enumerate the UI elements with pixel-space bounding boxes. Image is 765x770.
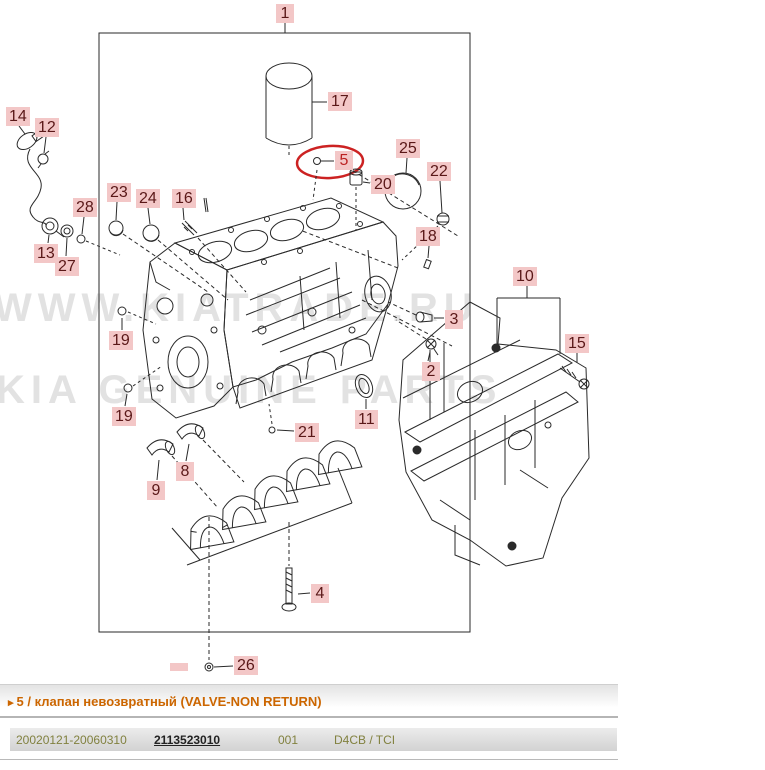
partial-label: [170, 663, 188, 671]
parts-diagram-stage: WWW.KIATRADE.RU KIA GENUINE PARTS: [0, 0, 765, 682]
callout-19[interactable]: 19: [109, 331, 133, 350]
selected-part-title: ▸5 / клапан невозвратный (VALVE-NON RETU…: [8, 694, 322, 709]
quantity: 001: [278, 733, 334, 747]
callout-4[interactable]: 4: [311, 584, 329, 603]
date-range: 20020121-20060310: [16, 733, 154, 747]
callout-24[interactable]: 24: [136, 189, 160, 208]
model-code: D4CB / TCI: [334, 733, 395, 747]
callout-2[interactable]: 2: [422, 362, 440, 381]
callout-23[interactable]: 23: [107, 183, 131, 202]
callout-22[interactable]: 22: [427, 162, 451, 181]
callout-12[interactable]: 12: [35, 118, 59, 137]
callout-5[interactable]: 5: [335, 151, 353, 170]
callout-15[interactable]: 15: [565, 334, 589, 353]
callout-14[interactable]: 14: [6, 107, 30, 126]
callout-3[interactable]: 3: [445, 310, 463, 329]
divider-bottom: [0, 759, 618, 760]
part-info-row[interactable]: 20020121-20060310 2113523010 001 D4CB / …: [10, 728, 617, 751]
callout-9[interactable]: 9: [147, 481, 165, 500]
callout-28[interactable]: 28: [73, 198, 97, 217]
selected-part-header: ▸5 / клапан невозвратный (VALVE-NON RETU…: [0, 684, 618, 715]
callout-18[interactable]: 18: [416, 227, 440, 246]
callout-16[interactable]: 16: [172, 189, 196, 208]
callout-21[interactable]: 21: [295, 423, 319, 442]
part-number-link[interactable]: 2113523010: [154, 733, 270, 747]
callout-17[interactable]: 17: [328, 92, 352, 111]
callout-layer: 1171412232416285252022181327103191521911…: [0, 0, 765, 682]
callout-27[interactable]: 27: [55, 257, 79, 276]
footer-panel: ▸5 / клапан невозвратный (VALVE-NON RETU…: [0, 682, 765, 770]
callout-10[interactable]: 10: [513, 267, 537, 286]
callout-19[interactable]: 19: [112, 407, 136, 426]
callout-1[interactable]: 1: [276, 4, 294, 23]
divider: [0, 716, 618, 718]
callout-11[interactable]: 11: [355, 410, 378, 429]
callout-26[interactable]: 26: [234, 656, 258, 675]
callout-8[interactable]: 8: [176, 462, 194, 481]
arrow-icon: ▸: [8, 697, 14, 709]
callout-25[interactable]: 25: [396, 139, 420, 158]
callout-20[interactable]: 20: [371, 175, 395, 194]
